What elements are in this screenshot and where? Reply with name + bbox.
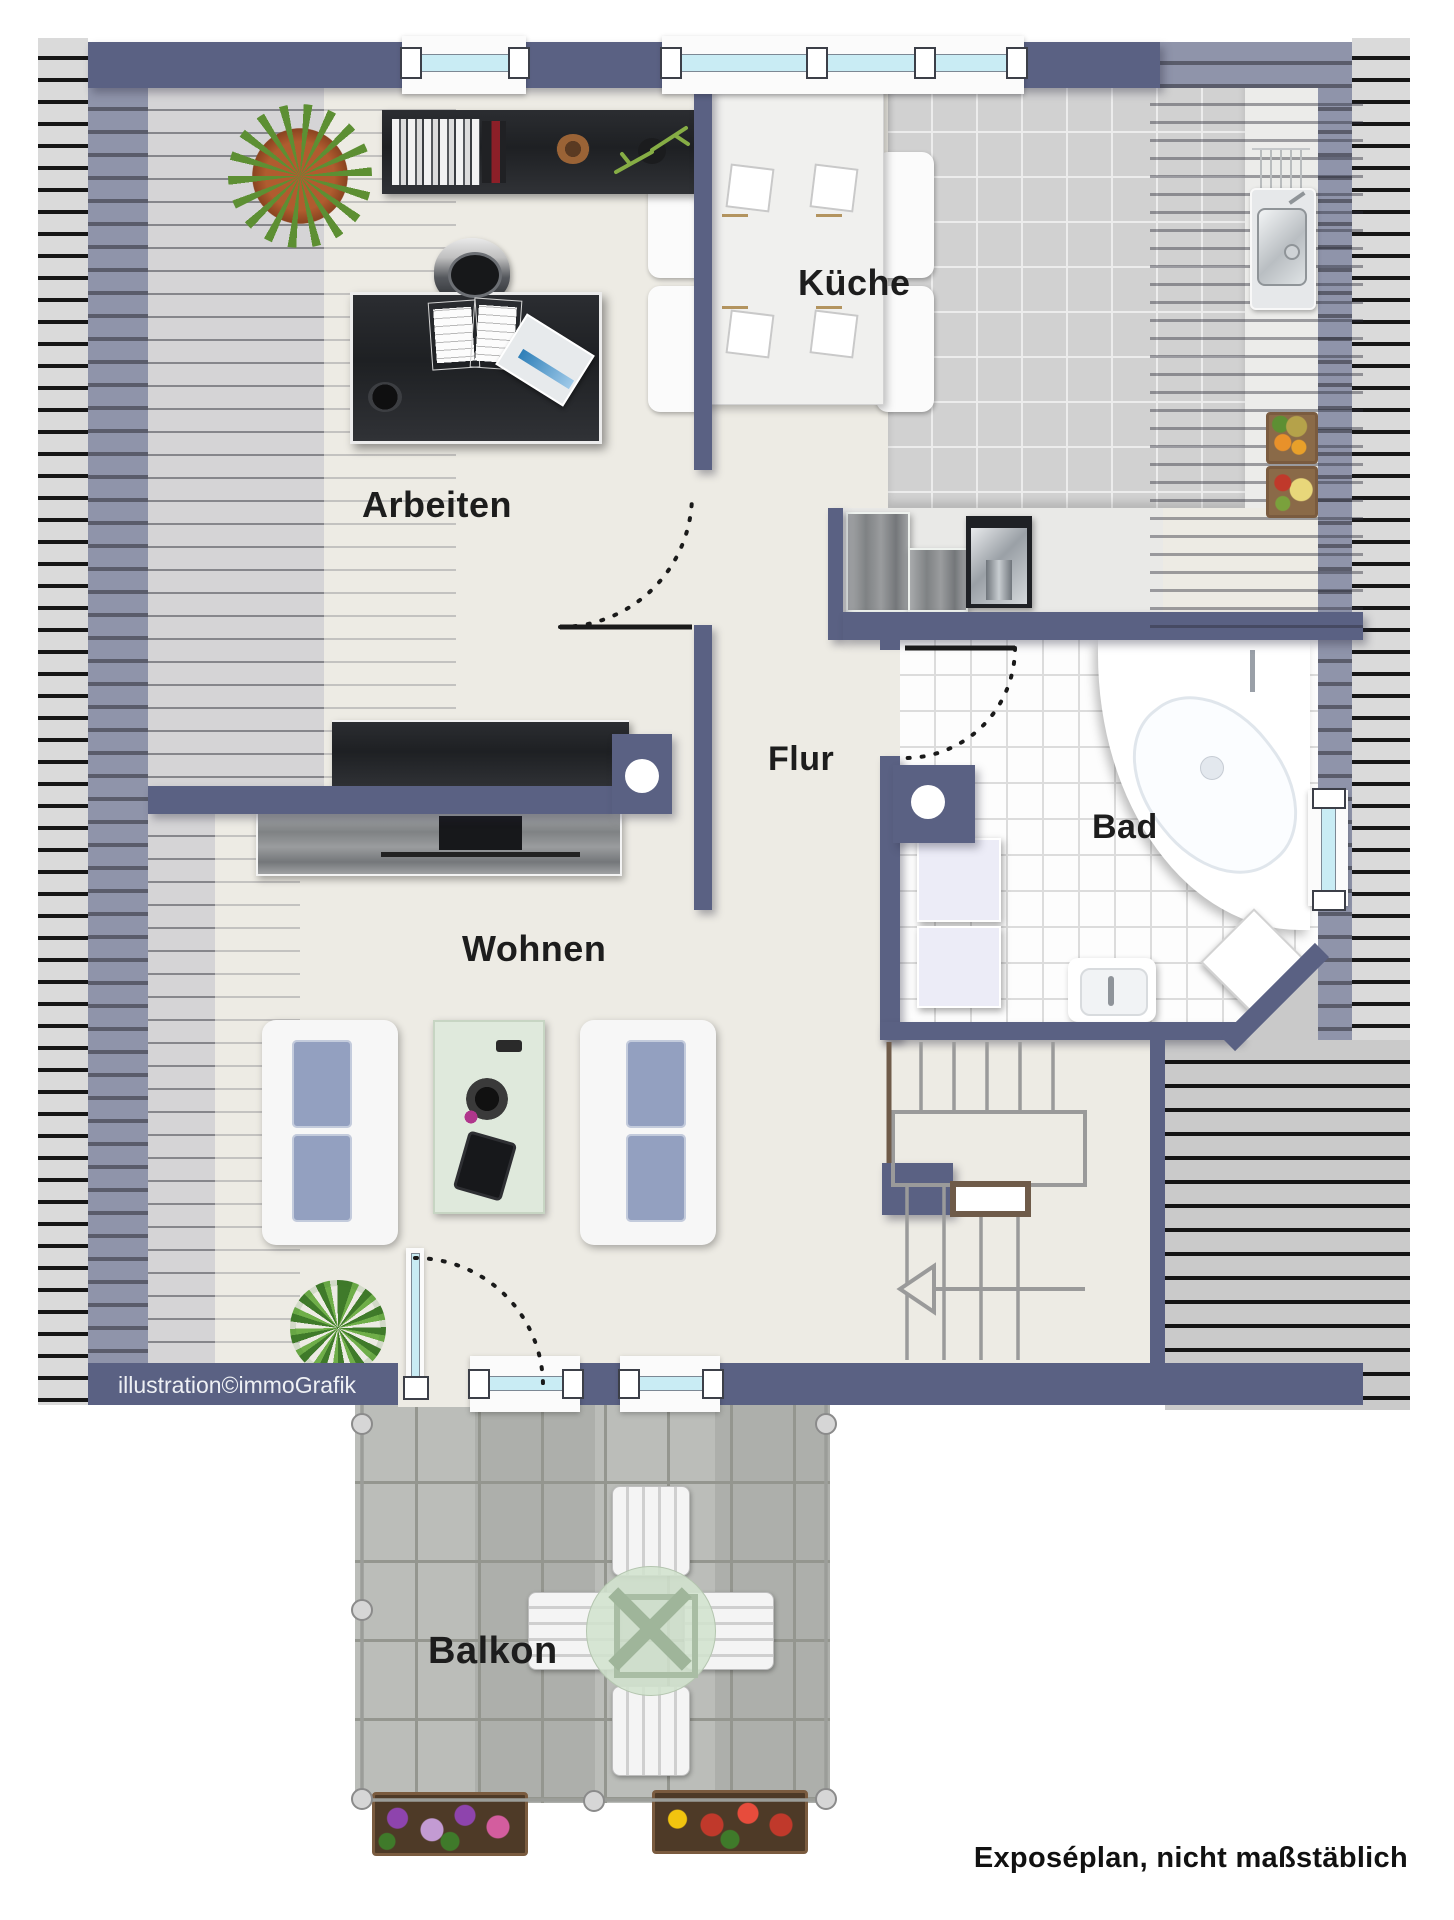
- balcony-chair-north: [612, 1486, 690, 1576]
- coffee-table-flower-icon: [462, 1108, 480, 1126]
- label-arbeiten: Arbeiten: [362, 484, 512, 526]
- sofa-left-cushion-2: [292, 1134, 352, 1222]
- fruit-box-2: [1266, 466, 1318, 518]
- cabinet-dark-wohnen: [332, 720, 629, 788]
- label-wohnen: Wohnen: [462, 928, 606, 970]
- dining-chair-right-bottom: [876, 286, 934, 412]
- window-arbeiten-cap-right: [508, 47, 530, 79]
- balcony-door-leaf-glass: [411, 1253, 420, 1381]
- dining-table: [700, 85, 884, 405]
- column-dot-tv: [625, 759, 659, 793]
- label-kueche: Küche: [798, 262, 911, 304]
- kitchen-cabinet-1: [846, 512, 910, 612]
- floor-plan: Arbeiten Küche Flur Bad Wohnen Balkon il…: [0, 0, 1454, 1920]
- window-wohnen-b-cap-left: [618, 1369, 640, 1399]
- wall-kitchen-stub: [828, 508, 843, 640]
- place-setting-1: [725, 163, 774, 212]
- dining-chair-right-top: [876, 152, 934, 278]
- dryer: [917, 926, 1001, 1008]
- window-bad-cap-bottom: [1312, 890, 1346, 911]
- window-kueche-cap-left: [660, 47, 682, 79]
- slope-stripes-wohnen: [148, 814, 215, 1363]
- wall-stairs-newel: [882, 1163, 953, 1215]
- wall-bad-bottom: [880, 1022, 1240, 1040]
- wall-arbeiten-flur-lower: [694, 625, 712, 910]
- sofa-left-cushion-1: [292, 1040, 352, 1128]
- wall-stairs-right: [1150, 1040, 1165, 1363]
- coffee-table-glasses-icon: [496, 1040, 522, 1052]
- window-wohnen-b-cap-right: [702, 1369, 724, 1399]
- roof-band-left: [88, 42, 148, 1405]
- balcony-chair-south: [612, 1686, 690, 1776]
- window-kueche-glass: [670, 54, 1018, 72]
- cutlery-1: [722, 214, 748, 217]
- roof-stripes-bottom-right: [1165, 1040, 1410, 1410]
- roof-stripes-left: [38, 38, 88, 1405]
- label-flur: Flur: [768, 740, 834, 779]
- dishwasher-inner: [986, 560, 1012, 600]
- wall-bottom-right: [472, 1363, 1363, 1405]
- bookshelf-books: [392, 119, 480, 185]
- place-setting-4: [809, 309, 858, 358]
- window-wohnen-a-cap-right: [562, 1369, 584, 1399]
- sofa-right-cushion-1: [626, 1040, 686, 1128]
- cutlery-4: [816, 306, 842, 309]
- illustration-credit: illustration©immoGrafik: [118, 1372, 356, 1399]
- bathtub-drain-dot: [1200, 756, 1224, 780]
- kitchen-cabinet-2: [908, 548, 968, 612]
- wall-arbeiten-flur-upper: [694, 88, 712, 470]
- window-bad-cap-top: [1312, 788, 1346, 809]
- sofa-right-cushion-2: [626, 1134, 686, 1222]
- bathtub-faucet-icon: [1250, 650, 1255, 692]
- soundbar-icon: [381, 852, 580, 857]
- flower-box-left: [372, 1792, 528, 1856]
- tv-icon: [439, 816, 522, 850]
- flower-box-right: [652, 1790, 808, 1854]
- window-wohnen-a-glass: [478, 1376, 574, 1391]
- yucca-plant-leaves-icon: [228, 104, 372, 248]
- place-setting-3: [725, 309, 774, 358]
- bookshelf-plantpot-icon: [638, 138, 666, 164]
- wall-tv: [148, 786, 612, 814]
- toilet-bowl: [1080, 968, 1148, 1016]
- desk-chair-seat: [448, 252, 502, 298]
- wohnen-plant-icon: [290, 1280, 386, 1376]
- wall-bad-left-top: [880, 640, 900, 650]
- window-kueche-mullion-1: [806, 47, 828, 79]
- cutlery-3: [722, 306, 748, 309]
- column-dot-bad: [911, 785, 945, 819]
- window-arbeiten-cap-left: [400, 47, 422, 79]
- place-setting-2: [809, 163, 858, 212]
- disclaimer-text: Exposéplan, nicht maßstäblich: [974, 1842, 1408, 1875]
- roof-band-top-right: [1158, 42, 1352, 88]
- window-bad-glass: [1321, 798, 1336, 900]
- bookshelf-bowl-icon: [556, 134, 590, 164]
- window-arbeiten-glass: [410, 54, 520, 72]
- toilet-flush-icon: [1108, 976, 1114, 1006]
- sink-drainer: [1252, 148, 1310, 190]
- cutlery-2: [816, 214, 842, 217]
- washer: [917, 838, 1001, 922]
- bookshelf-red-books: [482, 121, 506, 183]
- label-balkon: Balkon: [428, 1630, 558, 1673]
- window-kueche-cap-right: [1006, 47, 1028, 79]
- label-bad: Bad: [1092, 808, 1158, 847]
- window-kueche-mullion-2: [914, 47, 936, 79]
- desk-lamp-icon: [368, 382, 402, 412]
- kitchen-sink-basin: [1257, 208, 1307, 286]
- fruit-box-1: [1266, 412, 1318, 464]
- balcony-door-hinge-cap: [403, 1376, 429, 1400]
- window-wohnen-a-cap-left: [468, 1369, 490, 1399]
- kitchen-drain-dot: [1284, 244, 1300, 260]
